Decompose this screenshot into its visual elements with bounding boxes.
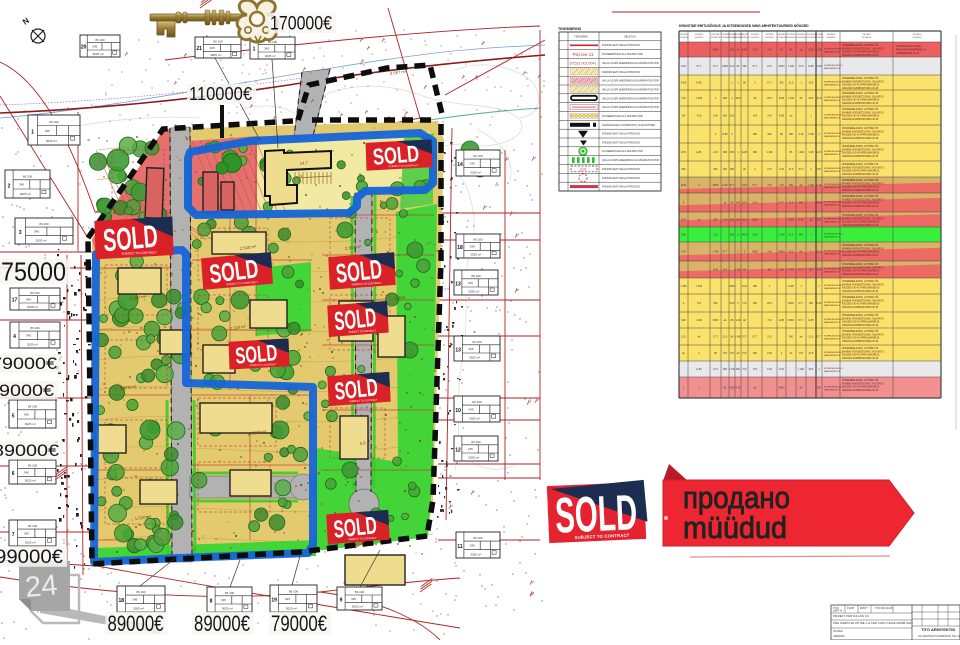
- svg-text:1: 1: [31, 130, 34, 136]
- svg-text:57.7: 57.7: [723, 251, 728, 254]
- svg-text:28.5: 28.5: [681, 151, 686, 154]
- svg-text:9-18: 9-18: [736, 387, 741, 390]
- svg-text:99000€: 99000€: [0, 547, 63, 568]
- svg-text:345/3: 345/3: [713, 319, 720, 322]
- svg-text:345: 345: [221, 598, 226, 602]
- svg-text:JÄRGIDA NAABRUSKONDA 30-45: JÄRGIDA NAABRUSKONDA 30-45: [842, 155, 879, 158]
- svg-text:KALDEGA 30-45 VÄRVILAHENDUS: KALDEGA 30-45 VÄRVILAHENDUS: [842, 221, 880, 224]
- svg-text:1 400: 1 400: [713, 251, 720, 254]
- svg-text:86 100: 86 100: [39, 222, 49, 226]
- svg-text:1 400: 1 400: [816, 49, 823, 52]
- svg-text:170000€: 170000€: [270, 14, 332, 35]
- svg-text:89000€: 89000€: [108, 611, 164, 636]
- svg-text:E-85: E-85: [722, 184, 728, 187]
- svg-text:E-85: E-85: [729, 387, 735, 390]
- svg-text:900: 900: [753, 352, 758, 355]
- svg-text:E-85: E-85: [696, 82, 702, 85]
- svg-text:345: 345: [470, 244, 475, 248]
- svg-text:1 400: 1 400: [735, 336, 742, 339]
- svg-text:57.7: 57.7: [697, 65, 702, 68]
- svg-text:E-85: E-85: [681, 184, 687, 187]
- svg-text:TINGMÄRK: TINGMÄRK: [574, 35, 588, 39]
- svg-text:1 400: 1 400: [729, 368, 736, 371]
- svg-text:3025 m²: 3025 m²: [222, 607, 233, 611]
- svg-text:KRUNDI: KRUNDI: [751, 34, 760, 36]
- svg-text:SUURUS: SUURUS: [814, 37, 824, 39]
- svg-text:18: 18: [119, 598, 125, 604]
- svg-text:KRUNDI: KRUNDI: [777, 34, 786, 36]
- svg-text:900: 900: [753, 302, 758, 305]
- svg-text:86 100: 86 100: [49, 120, 59, 124]
- svg-text:N: N: [21, 16, 31, 27]
- svg-text:JÄRGIDA NAABRUSKONDA 30-45: JÄRGIDA NAABRUSKONDA 30-45: [842, 224, 879, 227]
- svg-text:21.5: 21.5: [681, 336, 686, 339]
- svg-text:110000€: 110000€: [189, 83, 253, 104]
- svg-text:PLANEERITAVA ALA KRUNDI PIIR: PLANEERITAVA ALA KRUNDI PIIR: [602, 149, 643, 153]
- svg-text:MAKSIMUM K-8: MAKSIMUM K-8: [824, 221, 841, 224]
- svg-text:MAKSIMUM K-8: MAKSIMUM K-8: [824, 338, 841, 341]
- svg-text:KORRUSELISUS 1: KORRUSELISUS 1: [824, 234, 844, 236]
- svg-text:900: 900: [723, 168, 728, 171]
- svg-text:13: 13: [455, 282, 461, 288]
- svg-text:86 100: 86 100: [23, 175, 33, 179]
- svg-text:86 100: 86 100: [473, 238, 483, 242]
- svg-text:SELETUS: SELETUS: [624, 35, 636, 39]
- svg-text:345: 345: [24, 413, 29, 417]
- svg-text:560: 560: [714, 302, 719, 305]
- svg-text:13: 13: [455, 348, 461, 354]
- svg-text:345: 345: [24, 470, 29, 474]
- svg-text:21.5: 21.5: [713, 368, 718, 371]
- svg-text:11: 11: [457, 544, 463, 550]
- svg-text:H-8: H-8: [723, 269, 728, 272]
- svg-text:KINNINE HOONESTUSVIIS. VIILKAT: KINNINE HOONESTUSVIIS. VIILKATUS: [842, 247, 884, 250]
- svg-text:E-85: E-85: [788, 219, 794, 222]
- svg-text:ÜHEPEREELAMUD, LAHTINE VÕI: ÜHEPEREELAMUD, LAHTINE VÕI: [842, 214, 879, 217]
- svg-text:SUURUS: SUURUS: [740, 37, 750, 39]
- svg-text:9-18: 9-18: [742, 184, 747, 187]
- svg-text:86 100: 86 100: [472, 340, 482, 344]
- svg-text:345: 345: [470, 544, 475, 548]
- svg-text:3025 m²: 3025 m²: [210, 53, 221, 57]
- svg-text:JÄRGIDA NAABRUSKONDA 30-45: JÄRGIDA NAABRUSKONDA 30-45: [842, 273, 879, 276]
- svg-text:KINNINE HOONESTUSVIIS. VIILKAT: KINNINE HOONESTUSVIIS. VIILKATUS: [842, 333, 884, 336]
- svg-text:KORRUSELISUS 1: KORRUSELISUS 1: [824, 49, 844, 51]
- svg-text:9-18: 9-18: [736, 319, 741, 322]
- svg-text:9-18: 9-18: [767, 352, 772, 355]
- svg-text:KINNINE HOONESTUSVIIS. VIILKAT: KINNINE HOONESTUSVIIS. VIILKATUS: [842, 148, 884, 151]
- svg-text:H-8: H-8: [817, 168, 822, 171]
- svg-text:345/3: 345/3: [742, 234, 749, 237]
- svg-text:2: 2: [8, 183, 11, 189]
- svg-text:KRUNDI: KRUNDI: [797, 34, 806, 36]
- svg-text:1 400: 1 400: [788, 97, 795, 100]
- svg-text:560: 560: [817, 387, 822, 390]
- svg-text:345/3: 345/3: [779, 65, 786, 68]
- svg-text:H-8: H-8: [743, 352, 748, 355]
- svg-text:KRUNDI: KRUNDI: [827, 34, 836, 36]
- svg-text:6: 6: [12, 471, 15, 477]
- svg-text:H-8: H-8: [736, 202, 741, 205]
- svg-text:KRUNDI EHITUSALA PIIRJOON: KRUNDI EHITUSALA PIIRJOON: [602, 132, 640, 136]
- svg-text:19: 19: [271, 598, 277, 604]
- svg-text:28.5: 28.5: [736, 97, 741, 100]
- svg-text:KRUNDI: KRUNDI: [862, 34, 871, 36]
- svg-text:MAKSIMUM K-8: MAKSIMUM K-8: [824, 304, 841, 307]
- svg-text:JÄRGIDA NAABRUSKONDA 30-45: JÄRGIDA NAABRUSKONDA 30-45: [842, 340, 879, 343]
- svg-text:86 100: 86 100: [289, 589, 299, 593]
- svg-text:86 100: 86 100: [473, 536, 483, 540]
- svg-text:1 400: 1 400: [808, 184, 815, 187]
- svg-text:H-8: H-8: [743, 302, 748, 305]
- svg-text:3025 m²: 3025 m²: [92, 52, 103, 56]
- svg-text:86 100: 86 100: [136, 590, 146, 594]
- svg-text:1 400: 1 400: [696, 319, 703, 322]
- svg-text:1 400: 1 400: [779, 234, 786, 237]
- svg-text:KORRUSELISUS 1: KORRUSELISUS 1: [824, 202, 844, 204]
- svg-text:ÜHEPEREELAMUD, LAHTINE VÕI: ÜHEPEREELAMUD, LAHTINE VÕI: [842, 163, 879, 166]
- svg-text:SUURUS: SUURUS: [750, 37, 760, 39]
- svg-text:28.5: 28.5: [753, 202, 758, 205]
- svg-text:KALDEGA 30-45 VÄRVILAHENDUS: KALDEGA 30-45 VÄRVILAHENDUS: [842, 386, 880, 389]
- svg-text:KINNINE HOONESTUSVIIS. VIILKAT: KINNINE HOONESTUSVIIS. VIILKATUS: [842, 317, 884, 320]
- svg-text:3025 m²: 3025 m²: [470, 552, 481, 556]
- svg-text:86 100: 86 100: [473, 154, 483, 158]
- svg-text:3025 m²: 3025 m²: [25, 479, 36, 483]
- svg-text:900: 900: [817, 219, 822, 222]
- svg-text:86 100: 86 100: [225, 591, 235, 595]
- svg-text:ÜHEPEREELAMUD, LAHTINE VÕI: ÜHEPEREELAMUD, LAHTINE VÕI: [842, 127, 879, 130]
- svg-text:KRUNDI EHITUSALA PIIRJOON: KRUNDI EHITUSALA PIIRJOON: [602, 43, 640, 47]
- svg-text:JÄRGIDA NAABRUSKONDA 30-45: JÄRGIDA NAABRUSKONDA 30-45: [842, 254, 879, 257]
- svg-text:KINNINE HOONESTUSVIIS. VIILKAT: KINNINE HOONESTUSVIIS. VIILKATUS: [842, 111, 884, 114]
- svg-text:KORRUSELISUS 1: KORRUSELISUS 1: [824, 65, 844, 67]
- svg-text:MAKSIMUM K-8: MAKSIMUM K-8: [824, 186, 841, 189]
- svg-text:900: 900: [780, 82, 785, 85]
- svg-text:3025 m²: 3025 m²: [469, 356, 480, 360]
- svg-text:SUURUS: SUURUS: [765, 37, 775, 39]
- svg-text:21.5: 21.5: [809, 352, 814, 355]
- svg-text:KRUNDI: KRUNDI: [679, 34, 688, 36]
- svg-text:KALDEGA 30-45 VÄRVILAHENDUS: KALDEGA 30-45 VÄRVILAHENDUS: [842, 99, 880, 102]
- svg-text:17: 17: [12, 298, 18, 304]
- svg-text:MAKSIMUM K-8: MAKSIMUM K-8: [824, 287, 841, 290]
- svg-text:5: 5: [12, 413, 15, 419]
- svg-text:JÄRGIDA NAABRUSKONDA 30-45: JÄRGIDA NAABRUSKONDA 30-45: [842, 357, 879, 360]
- svg-text:28.5: 28.5: [809, 269, 814, 272]
- svg-text:9-18: 9-18: [713, 115, 718, 118]
- svg-text:KORRUSELISUS 1: KORRUSELISUS 1: [824, 168, 844, 170]
- svg-text:21.5: 21.5: [713, 151, 718, 154]
- svg-text:KRUNDI EHITUSALA PIIRJOON: KRUNDI EHITUSALA PIIRJOON: [602, 185, 640, 189]
- svg-text:345: 345: [285, 597, 290, 601]
- svg-text:3025 m²: 3025 m²: [25, 422, 36, 426]
- svg-text:57.7: 57.7: [753, 184, 758, 187]
- svg-text:KORRUSELISUS 1: KORRUSELISUS 1: [824, 285, 844, 287]
- svg-text:Piiri tee 11: Piiri tee 11: [573, 52, 594, 57]
- svg-text:345: 345: [470, 162, 475, 166]
- svg-text:E-85: E-85: [742, 151, 748, 154]
- svg-text:57.7: 57.7: [817, 336, 822, 339]
- svg-text:28.5: 28.5: [742, 202, 747, 205]
- svg-text:OÜ ARHITEKTUURIBÜROO TEL 111 2: OÜ ARHITEKTUURIBÜROO TEL 111 22 33: [918, 634, 960, 638]
- svg-text:H-8: H-8: [768, 319, 773, 322]
- svg-text:KORRUSELISUS 1: KORRUSELISUS 1: [824, 151, 844, 153]
- svg-text:9-18: 9-18: [779, 168, 784, 171]
- svg-text:E-85: E-85: [808, 65, 814, 68]
- svg-text:900: 900: [730, 234, 735, 237]
- svg-text:LEHT N: LEHT N: [833, 609, 842, 613]
- svg-text:9: 9: [340, 597, 343, 603]
- svg-text:JÄRGIDA NAABRUSKONDA 30-45: JÄRGIDA NAABRUSKONDA 30-45: [842, 102, 879, 105]
- svg-text:9-18: 9-18: [767, 368, 772, 371]
- svg-text:H-8: H-8: [768, 251, 773, 254]
- svg-text:3025 m²: 3025 m²: [470, 170, 481, 174]
- svg-text:3025 m²: 3025 m²: [286, 606, 297, 610]
- svg-text:ÜHEPEREELAMUD, LAHTINE VÕI: ÜHEPEREELAMUD, LAHTINE VÕI: [842, 296, 879, 299]
- svg-text:9-18: 9-18: [681, 65, 686, 68]
- svg-text:KALDEGA 30-45 VÄRVILAHENDUS: KALDEGA 30-45 VÄRVILAHENDUS: [842, 354, 880, 357]
- svg-text:JÄRGIDA NAABRUSKONDA 30-45: JÄRGIDA NAABRUSKONDA 30-45: [842, 389, 879, 392]
- svg-text:KORRUSELISUS 1: KORRUSELISUS 1: [824, 219, 844, 221]
- svg-text:560: 560: [743, 65, 748, 68]
- svg-text:KRUNDI EHITUSALA PIIRJOON: KRUNDI EHITUSALA PIIRJOON: [602, 70, 640, 74]
- svg-text:21.5: 21.5: [767, 168, 772, 171]
- svg-text:H-8: H-8: [682, 251, 687, 254]
- svg-text:KALDEGA 30-45 VÄRVILAHENDUS: KALDEGA 30-45 VÄRVILAHENDUS: [842, 84, 880, 87]
- svg-text:ÜHEPEREELAMUD, LAHTINE VÕI: ÜHEPEREELAMUD, LAHTINE VÕI: [842, 77, 879, 80]
- svg-text:KALDEGA 30-45 VÄRVILAHENDUS: KALDEGA 30-45 VÄRVILAHENDUS: [842, 152, 880, 155]
- svg-text:12: 12: [455, 448, 461, 454]
- svg-text:KALDEGA 30-45 VÄRVILAHENDUS: KALDEGA 30-45 VÄRVILAHENDUS: [842, 337, 880, 340]
- svg-text:9-18: 9-18: [799, 133, 804, 136]
- svg-text:SUURUS: SUURUS: [862, 37, 872, 39]
- svg-text:KINNINE HOONESTUSVIIS. VIILKAT: KINNINE HOONESTUSVIIS. VIILKATUS: [842, 382, 884, 385]
- svg-text:KINNINE HOONESTUSVIIS. VIILKAT: KINNINE HOONESTUSVIIS. VIILKATUS: [842, 182, 884, 185]
- svg-text:1 400: 1 400: [767, 151, 774, 154]
- svg-text:9-18: 9-18: [779, 269, 784, 272]
- svg-text:21.5: 21.5: [713, 234, 718, 237]
- svg-text:SUURUS: SUURUS: [711, 37, 721, 39]
- svg-text:KRUNDI EHITUSALA PIIRJOON: KRUNDI EHITUSALA PIIRJOON: [602, 140, 640, 144]
- svg-text:345: 345: [26, 297, 31, 301]
- svg-text:345: 345: [468, 281, 473, 285]
- svg-text:KALDEGA 30-45 VÄRVILAHENDUS: KALDEGA 30-45 VÄRVILAHENDUS: [842, 202, 880, 205]
- svg-text:ÜHEPEREELAMUD, LAHTINE VÕI: ÜHEPEREELAMUD, LAHTINE VÕI: [842, 379, 879, 382]
- svg-text:H-8: H-8: [753, 115, 758, 118]
- svg-text:57.7: 57.7: [730, 184, 735, 187]
- svg-text:20: 20: [81, 45, 87, 51]
- svg-text:560: 560: [753, 285, 758, 288]
- svg-text:KALDEGA 30-45 VÄRVILAHENDUS: KALDEGA 30-45 VÄRVILAHENDUS: [842, 251, 880, 254]
- svg-text:E-85: E-85: [722, 133, 728, 136]
- svg-text:24: 24: [24, 569, 59, 604]
- svg-text:900: 900: [723, 151, 728, 154]
- svg-text:ÜHEPEREELAMUD, LAHTINE VÕI: ÜHEPEREELAMUD, LAHTINE VÕI: [842, 244, 879, 247]
- svg-text:3025 m²: 3025 m²: [27, 305, 38, 309]
- svg-text:PLANEERITAVA ALA KRUNDI PIIR: PLANEERITAVA ALA KRUNDI PIIR: [602, 52, 643, 56]
- svg-text:LAIENDAMINE 30-45: LAIENDAMINE 30-45: [896, 52, 920, 55]
- svg-text:TINGMÄRGID: TINGMÄRGID: [558, 27, 582, 31]
- svg-text:VALLA ÜLDPLANEERINGUGA MÄÄRATU: VALLA ÜLDPLANEERINGUGA MÄÄRATUD PIIR: [602, 105, 659, 109]
- svg-text:KUUP: KUUP: [847, 606, 854, 610]
- svg-text:9-18: 9-18: [809, 151, 814, 154]
- svg-text:ÜHEPEREELAMUD, LAHTINE VÕI: ÜHEPEREELAMUD, LAHTINE VÕI: [842, 44, 879, 47]
- svg-text:3025 m²: 3025 m²: [265, 54, 276, 58]
- svg-text:JÄRGIDA NAABRUSKONDA 30-45: JÄRGIDA NAABRUSKONDA 30-45: [842, 306, 879, 309]
- svg-text:p10: p10: [580, 166, 587, 171]
- svg-text:900: 900: [768, 133, 773, 136]
- svg-text:345/3: 345/3: [713, 49, 720, 52]
- svg-text:TITO ARHITEKTID: TITO ARHITEKTID: [921, 627, 955, 632]
- svg-text:E-85: E-85: [779, 319, 785, 322]
- svg-text:3025 m²: 3025 m²: [133, 606, 144, 610]
- svg-text:1 400: 1 400: [798, 368, 805, 371]
- svg-text:KORRUSELISUS 1: KORRUSELISUS 1: [824, 336, 844, 338]
- svg-text:E-85: E-85: [696, 368, 702, 371]
- svg-text:21.5: 21.5: [789, 82, 794, 85]
- svg-text:E-85: E-85: [713, 269, 719, 272]
- svg-text:JÄRGIDA NAABRUSKONDA 30-45: JÄRGIDA NAABRUSKONDA 30-45: [842, 54, 879, 57]
- svg-text:TÖÖ NR 20-45: TÖÖ NR 20-45: [875, 606, 893, 610]
- svg-text:JÄRGIDA NAABRUSKONDA 30-45: JÄRGIDA NAABRUSKONDA 30-45: [842, 173, 879, 176]
- svg-text:KORRUSELISUS 1: KORRUSELISUS 1: [824, 368, 844, 370]
- svg-text:14: 14: [457, 162, 463, 168]
- svg-text:28.5: 28.5: [789, 251, 794, 254]
- svg-text:3025 m²: 3025 m²: [20, 192, 31, 196]
- svg-text:JÄRGIDA NAABRUSKONDA 30-45: JÄRGIDA NAABRUSKONDA 30-45: [842, 118, 879, 121]
- svg-text:89000€: 89000€: [0, 381, 55, 400]
- svg-text:1 400: 1 400: [681, 285, 688, 288]
- svg-text:VALLA ÜLDPLANEERINGUGA MÄÄRATU: VALLA ÜLDPLANEERINGUGA MÄÄRATUD PIIR: [602, 158, 659, 162]
- svg-text:E-85: E-85: [798, 219, 804, 222]
- svg-text:H-8: H-8: [780, 184, 785, 187]
- svg-text:MAKSIMUM K-8: MAKSIMUM K-8: [824, 153, 841, 156]
- svg-text:VALLA ÜLDPLANEERINGUGA MÄÄRATU: VALLA ÜLDPLANEERINGUGA MÄÄRATUD PIIR: [602, 61, 659, 65]
- svg-text:86 100: 86 100: [471, 274, 481, 278]
- svg-text:9-18: 9-18: [753, 49, 758, 52]
- svg-text:KORRUSELISUS 1: KORRUSELISUS 1: [824, 184, 844, 186]
- svg-text:28.5: 28.5: [730, 49, 735, 52]
- svg-text:86 100: 86 100: [95, 38, 105, 42]
- svg-text:H-8: H-8: [768, 115, 773, 118]
- svg-text:KRUNDI EHITUSALA PIIRJOON: KRUNDI EHITUSALA PIIRJOON: [602, 167, 640, 171]
- svg-text:86 100: 86 100: [213, 40, 223, 44]
- svg-text:VALLA ÜLDPLANEERINGUGA MÄÄRATU: VALLA ÜLDPLANEERINGUGA MÄÄRATUD PIIR: [602, 79, 659, 83]
- svg-text:müüdud: müüdud: [683, 510, 787, 545]
- svg-text:1 400: 1 400: [798, 151, 805, 154]
- svg-text:SUURUS: SUURUS: [694, 37, 704, 39]
- svg-text:KORRUSELISUS 1: KORRUSELISUS 1: [824, 352, 844, 354]
- svg-text:3: 3: [19, 230, 22, 236]
- svg-text:18: 18: [457, 245, 463, 251]
- svg-text:560: 560: [789, 133, 794, 136]
- svg-text:89000€: 89000€: [194, 611, 250, 636]
- svg-text:560: 560: [730, 219, 735, 222]
- svg-text:VALLA ÜLDPLANEERINGUGA MÄÄRATU: VALLA ÜLDPLANEERINGUGA MÄÄRATUD PIIR: [602, 96, 659, 100]
- svg-text:345: 345: [468, 447, 473, 451]
- svg-text:E-85: E-85: [696, 151, 702, 154]
- svg-text:KALDEGA 30-45 VÄRVILAHENDUS: KALDEGA 30-45 VÄRVILAHENDUS: [842, 170, 880, 173]
- svg-text:KINNINE HOONESTUSVIIS. VIILKAT: KINNINE HOONESTUSVIIS. VIILKATUS: [842, 283, 884, 286]
- svg-text:KORRUSELISUS 1: KORRUSELISUS 1: [824, 269, 844, 271]
- svg-text:H-8: H-8: [730, 352, 735, 355]
- svg-text:560: 560: [753, 151, 758, 154]
- svg-text:57.7: 57.7: [713, 65, 718, 68]
- svg-text:KRUNDI: KRUNDI: [740, 34, 749, 36]
- svg-text:KINNINE HOONESTUSVIIS. VIILKAT: KINNINE HOONESTUSVIIS. VIILKATUS: [842, 350, 884, 353]
- svg-text:560: 560: [753, 133, 758, 136]
- svg-text:H-8: H-8: [768, 184, 773, 187]
- svg-text:PLANEERITAVA ALA KRUNDI PIIR: PLANEERITAVA ALA KRUNDI PIIR: [602, 114, 643, 118]
- svg-text:900: 900: [736, 368, 741, 371]
- svg-text:KINNINE HOONESTUSVIIS. VIILKAT: KINNINE HOONESTUSVIIS. VIILKATUS: [842, 299, 884, 302]
- svg-text:ÜHEPEREELAMUD, LAHTINE VÕI: ÜHEPEREELAMUD, LAHTINE VÕI: [842, 280, 879, 283]
- svg-text:345: 345: [468, 347, 473, 351]
- svg-text:345/3: 345/3: [713, 184, 720, 187]
- svg-text:MAKSIMUM K-8: MAKSIMUM K-8: [824, 51, 841, 54]
- svg-text:21: 21: [196, 46, 202, 52]
- svg-text:ÜHEPEREELAMUD, LAHTINE VÕI: ÜHEPEREELAMUD, LAHTINE VÕI: [842, 145, 879, 148]
- svg-text:345: 345: [24, 532, 29, 536]
- svg-text:SUURUS: SUURUS: [786, 37, 796, 39]
- svg-text:E-85: E-85: [779, 115, 785, 118]
- svg-text:345: 345: [34, 230, 39, 234]
- svg-text:900: 900: [682, 234, 687, 237]
- svg-text:3025 m²: 3025 m²: [352, 605, 363, 609]
- svg-text:KALDEGA 30-45 VÄRVILAHENDUS: KALDEGA 30-45 VÄRVILAHENDUS: [842, 115, 880, 118]
- svg-text:560: 560: [723, 97, 728, 100]
- svg-text:H-8: H-8: [697, 302, 702, 305]
- svg-text:KRUNDI: KRUNDI: [695, 34, 704, 36]
- svg-text:JÄRGIDA NAABRUSKONDA 30-45: JÄRGIDA NAABRUSKONDA 30-45: [842, 189, 879, 192]
- svg-text:21.5: 21.5: [767, 336, 772, 339]
- svg-text:MAKSIMUM K-8: MAKSIMUM K-8: [824, 170, 841, 173]
- svg-text:345: 345: [264, 46, 269, 50]
- svg-text:86 100: 86 100: [355, 590, 365, 594]
- svg-text:1 400: 1 400: [696, 285, 703, 288]
- svg-text:57.7: 57.7: [767, 82, 772, 85]
- svg-text:28.5: 28.5: [809, 97, 814, 100]
- svg-text:SUURUS: SUURUS: [826, 37, 836, 39]
- svg-text:3025 m²: 3025 m²: [36, 238, 47, 242]
- svg-text:9-18: 9-18: [817, 184, 822, 187]
- svg-text:KRUNTIDE EHITUSÕIGUS JA KITSEN: KRUNTIDE EHITUSÕIGUS JA KITSENDUSED NING…: [679, 23, 809, 28]
- svg-text:KORRUSELISUS 1: KORRUSELISUS 1: [824, 97, 844, 99]
- svg-text:KRUNDI EHITUSALA PIIRJOON: KRUNDI EHITUSALA PIIRJOON: [602, 176, 640, 180]
- svg-text:21.5: 21.5: [789, 202, 794, 205]
- svg-text:KRUNDI: KRUNDI: [913, 34, 922, 36]
- svg-text:KALDEGA 30-45 VÄRVILAHENDUS: KALDEGA 30-45 VÄRVILAHENDUS: [842, 51, 880, 54]
- svg-text:345: 345: [45, 129, 50, 133]
- svg-text:560: 560: [809, 302, 814, 305]
- svg-text:SUURUS: SUURUS: [796, 37, 806, 39]
- svg-text:MAKSIMUM K-8: MAKSIMUM K-8: [824, 253, 841, 256]
- svg-text:ÜHEPEREELAMUD, LAHTINE VÕI: ÜHEPEREELAMUD, LAHTINE VÕI: [842, 108, 879, 111]
- svg-text:28.5: 28.5: [730, 302, 735, 305]
- svg-text:3025 m²: 3025 m²: [468, 456, 479, 460]
- svg-text:SUURUS: SUURUS: [777, 37, 787, 39]
- svg-text:H-8: H-8: [682, 97, 687, 100]
- svg-text:JÄRGIDA NAABRUSKONDA 30-45: JÄRGIDA NAABRUSKONDA 30-45: [842, 137, 879, 140]
- svg-text:E-85: E-85: [779, 97, 785, 100]
- svg-text:KINNINE HOONESTUSVIIS. VIILKAT: KINNINE HOONESTUSVIIS. VIILKATUS: [842, 130, 884, 133]
- svg-text:86 100: 86 100: [30, 291, 40, 295]
- svg-text:KORRUSELISUS 1: KORRUSELISUS 1: [824, 387, 844, 389]
- svg-text:57.7: 57.7: [799, 319, 804, 322]
- svg-text:1 400: 1 400: [816, 65, 823, 68]
- svg-text:MAKSIMUM K-8: MAKSIMUM K-8: [824, 67, 841, 70]
